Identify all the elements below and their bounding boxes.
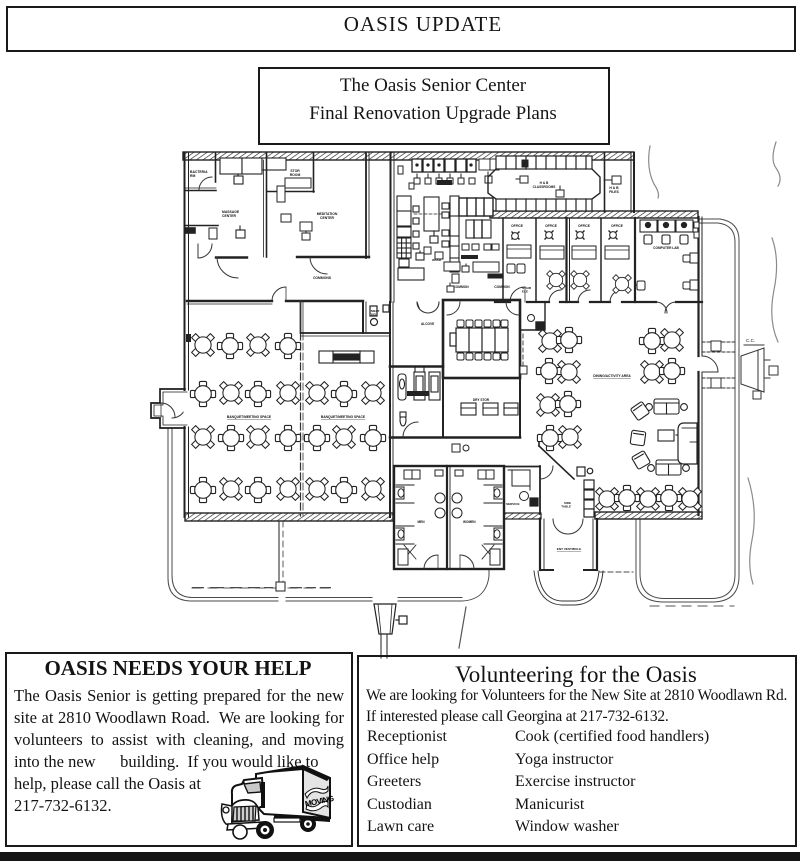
svg-text:H & BCLASSROOMS: H & BCLASSROOMS — [533, 181, 556, 189]
svg-text:COMMON: COMMON — [453, 285, 469, 289]
svg-text:DRY STOR: DRY STOR — [473, 398, 490, 402]
svg-text:BANQUET/MEETING SPACE: BANQUET/MEETING SPACE — [227, 415, 272, 419]
svg-text:BACTERIARM: BACTERIARM — [190, 170, 208, 178]
svg-text:WOMEN: WOMEN — [463, 520, 476, 524]
svg-text:H & BFILES: H & BFILES — [609, 186, 619, 194]
svg-text:DINING/ACTIVITY AREA: DINING/ACTIVITY AREA — [593, 374, 631, 378]
svg-text:BANQUET/MEETING SPACE: BANQUET/MEETING SPACE — [321, 415, 366, 419]
svg-text:OFFICE: OFFICE — [511, 224, 523, 228]
svg-text:ALCOVE: ALCOVE — [421, 322, 434, 326]
svg-text:SIDETABLE: SIDETABLE — [561, 501, 571, 508]
svg-text:WASH: WASH — [432, 258, 441, 262]
svg-text:ENT VESTIBULE: ENT VESTIBULE — [557, 547, 581, 551]
svg-text:STAIRELE: STAIRELE — [522, 286, 532, 294]
svg-text:MEATDEL: MEATDEL — [371, 309, 380, 317]
svg-text:MEDITATIONCENTER: MEDITATIONCENTER — [317, 212, 338, 220]
svg-text:OFFICE: OFFICE — [545, 224, 557, 228]
svg-text:OFFICE: OFFICE — [611, 224, 623, 228]
svg-text:C.C.: C.C. — [746, 338, 755, 343]
svg-text:OFFICE: OFFICE — [578, 224, 590, 228]
svg-text:COMPUTER LAB: COMPUTER LAB — [653, 246, 679, 250]
svg-text:MEN: MEN — [417, 520, 425, 524]
svg-text:COMMONS: COMMONS — [313, 276, 332, 280]
svg-text:SERVICE: SERVICE — [506, 502, 520, 506]
svg-text:MASSAGECENTER: MASSAGECENTER — [222, 210, 240, 218]
svg-text:STORROOM: STORROOM — [290, 169, 301, 177]
